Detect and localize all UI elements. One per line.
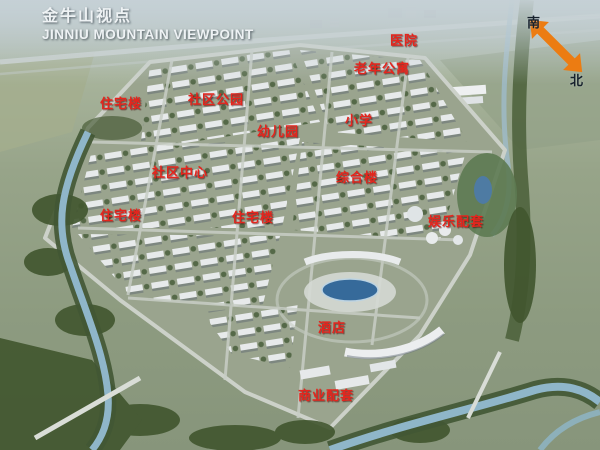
title-english: JINNIU MOUNTAIN VIEWPOINT [42,27,254,44]
compass: 南 北 [518,4,600,96]
map-label-community-park: 社区公园 [188,89,244,108]
map-label-entertainment-facilities: 娱乐配套 [428,211,484,230]
map-label-residential-west: 住宅楼 [100,205,142,224]
map-label-elderly-apartments: 老年公寓 [354,58,410,77]
map-label-hotel: 酒店 [318,317,346,336]
compass-south-label: 南 [527,12,540,31]
map-label-complex-building: 综合楼 [336,167,378,186]
aerial-scene [0,0,600,450]
compass-north-label: 北 [570,70,583,89]
viewpoint-title: 金牛山视点 JINNIU MOUNTAIN VIEWPOINT [42,7,254,44]
map-label-kindergarten: 幼儿园 [257,121,299,140]
title-chinese: 金牛山视点 [42,7,254,27]
map-label-residential-central: 住宅楼 [232,207,274,226]
map-label-commercial-facilities: 商业配套 [298,385,354,404]
map-label-community-center: 社区中心 [152,162,208,181]
map-label-primary-school: 小学 [345,110,373,129]
bottom-river [330,387,600,450]
aerial-masterplan-rendering: 金牛山视点 JINNIU MOUNTAIN VIEWPOINT 南 北 医院 老… [0,0,600,450]
map-label-residential-northwest: 住宅楼 [100,93,142,112]
map-label-hospital: 医院 [390,30,418,49]
